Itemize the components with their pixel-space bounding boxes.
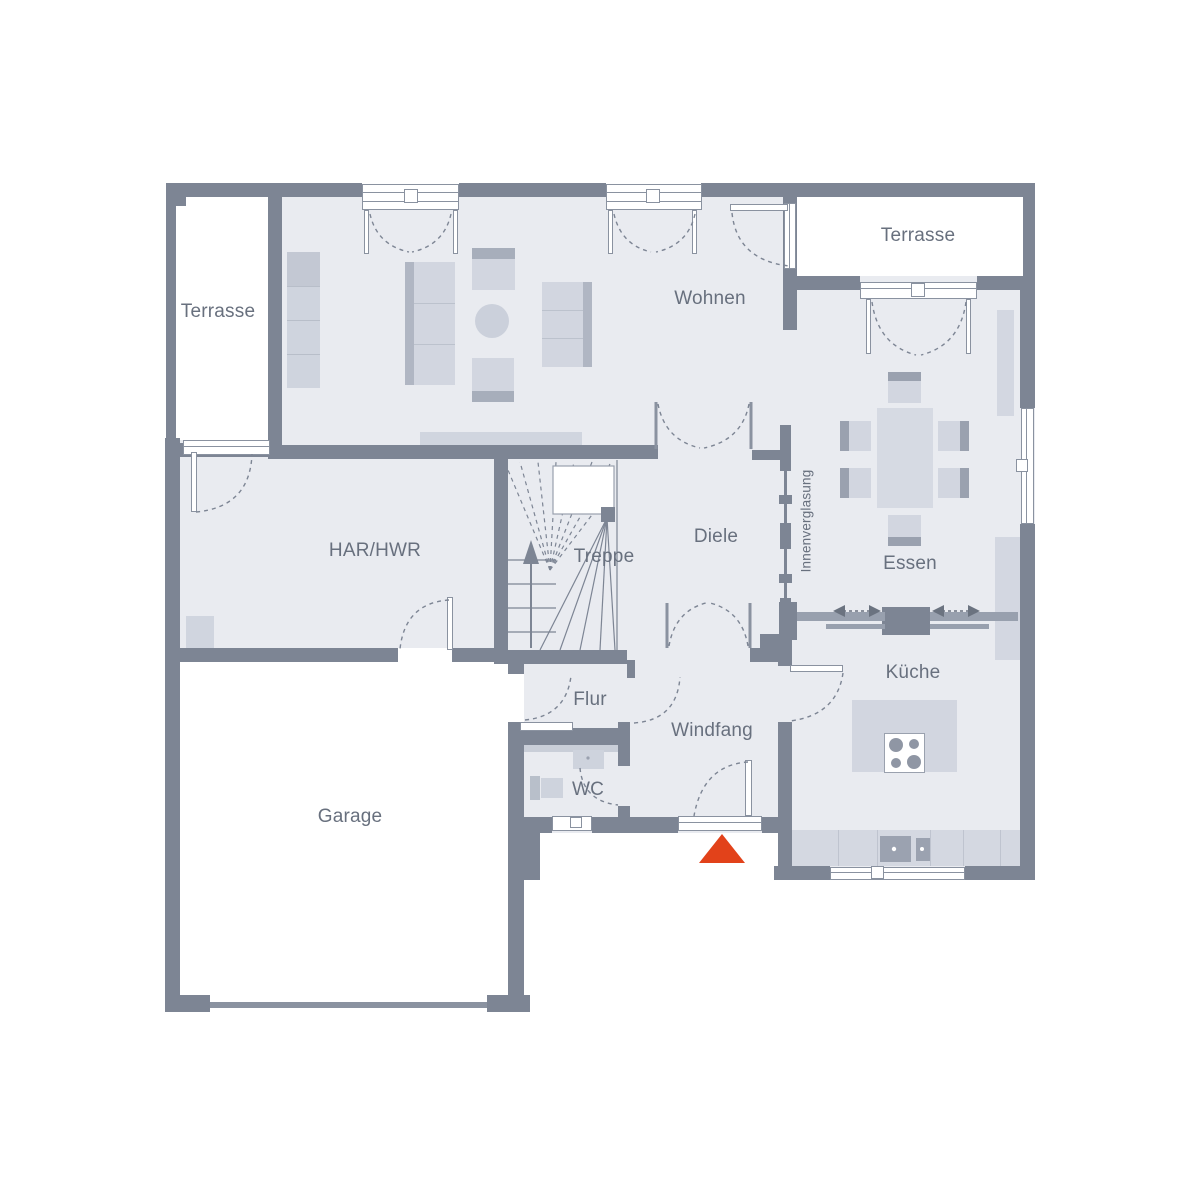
door-leaf <box>730 204 788 211</box>
counter-divider <box>838 830 839 866</box>
shelf-divider <box>287 286 320 287</box>
sideboard <box>997 310 1014 416</box>
door-frame-line <box>789 204 790 268</box>
sofa-cushion-line <box>414 344 455 345</box>
kitchen-tall-cabinet <box>995 537 1020 660</box>
entrance-recess <box>540 833 778 880</box>
wall <box>508 722 524 817</box>
wall <box>1020 290 1035 408</box>
dining-chair-back <box>960 421 969 451</box>
wall <box>1020 524 1035 880</box>
wall <box>540 817 552 833</box>
wall <box>452 648 494 662</box>
room-label-har-hwr: HAR/HWR <box>329 540 421 562</box>
front-door-threshold <box>678 816 762 831</box>
wall <box>508 662 524 674</box>
wall <box>487 995 530 1012</box>
door-opening <box>618 766 630 806</box>
wall <box>494 445 508 662</box>
wall <box>618 806 630 817</box>
armchair-back <box>472 248 515 259</box>
wall <box>965 866 1035 880</box>
counter-divider <box>1000 830 1001 866</box>
door-leaf <box>520 722 573 731</box>
sofa-cushion-line <box>414 303 455 304</box>
wall <box>508 817 540 880</box>
window-square <box>871 866 884 879</box>
armchair-back <box>472 391 514 402</box>
dining-chair-back <box>840 421 849 451</box>
sofa-cushion-line <box>542 338 583 339</box>
wall <box>882 607 930 635</box>
room-label-wc: WC <box>572 779 604 801</box>
garage-floor <box>180 662 508 995</box>
door-opening <box>508 674 524 722</box>
counter-divider <box>930 830 931 866</box>
window <box>830 867 965 880</box>
dining-chair-back <box>888 537 921 546</box>
wall <box>592 817 678 833</box>
wall <box>627 660 635 678</box>
garage-door <box>210 1002 487 1008</box>
washbasin <box>573 750 604 769</box>
door-opening <box>398 648 452 662</box>
window-line <box>831 872 964 873</box>
wall <box>176 196 186 206</box>
counter-divider <box>877 830 878 866</box>
kitchen-counter <box>790 830 1034 866</box>
door-leaf <box>608 210 613 254</box>
wall <box>175 183 362 197</box>
sliding-door-panel <box>930 624 989 629</box>
door-leaf <box>364 210 369 254</box>
wall <box>778 722 792 866</box>
sofa <box>542 282 583 367</box>
shelf-divider <box>287 320 320 321</box>
glazing-mullion <box>779 574 792 583</box>
floor-plan: Terrasse Wohnen Terrasse HAR/HWR Treppe … <box>0 0 1200 1200</box>
room-label-essen: Essen <box>883 553 937 575</box>
wall <box>165 995 210 1012</box>
wall <box>1023 183 1035 290</box>
dining-table <box>877 408 933 508</box>
door-frame-square <box>646 189 660 203</box>
dining-chair-back <box>888 372 921 381</box>
door-leaf <box>447 597 453 650</box>
dining-chair-back <box>840 468 849 498</box>
kitchen-sink <box>880 836 911 862</box>
wall <box>268 197 282 445</box>
room-label-terrasse-right: Terrasse <box>881 225 955 247</box>
wall <box>268 445 658 459</box>
door-frame-line <box>184 446 269 447</box>
wall <box>459 183 606 197</box>
wall <box>701 183 1035 197</box>
door-leaf <box>745 760 752 816</box>
utility-unit <box>186 616 214 648</box>
room-label-treppe: Treppe <box>574 546 635 568</box>
wall <box>774 866 830 880</box>
shelf-divider <box>287 354 320 355</box>
window-square <box>1016 459 1028 472</box>
counter-divider <box>963 830 964 866</box>
room-label-wohnen: Wohnen <box>674 288 746 310</box>
wall <box>165 648 398 662</box>
sliding-door-panel <box>930 612 1018 621</box>
room-label-terrasse-left: Terrasse <box>181 301 255 323</box>
wall <box>165 438 180 1012</box>
sliding-door-panel <box>826 624 885 629</box>
wall <box>779 602 797 640</box>
door-frame-line <box>679 822 761 823</box>
room-label-innenverglasung: Innenverglasung <box>799 470 814 573</box>
toilet-bowl <box>541 778 563 798</box>
door-frame-square <box>911 283 925 297</box>
room-label-garage: Garage <box>318 806 383 828</box>
toilet-tank <box>530 776 540 800</box>
cooktop <box>884 733 925 773</box>
door-leaf <box>453 210 458 254</box>
glazing-wall <box>780 523 791 549</box>
room-label-windfang: Windfang <box>671 720 753 742</box>
window-square <box>570 817 582 828</box>
sliding-door-panel <box>797 612 885 621</box>
room-label-flur: Flur <box>573 689 607 711</box>
room-label-kueche: Küche <box>886 662 941 684</box>
room-label-diele: Diele <box>694 526 738 548</box>
sofa-back <box>583 282 592 367</box>
shelf-top <box>287 252 320 286</box>
door-leaf <box>692 210 697 254</box>
wall <box>166 183 176 440</box>
door-leaf <box>966 299 971 354</box>
wall <box>783 276 860 290</box>
coffee-table <box>475 304 509 338</box>
glazing-mullion <box>779 495 792 504</box>
door-frame-square <box>404 189 418 203</box>
sofa <box>414 262 455 385</box>
door-leaf <box>191 452 197 512</box>
door-leaf <box>866 299 871 354</box>
wall <box>778 640 792 666</box>
sofa-cushion-line <box>542 310 583 311</box>
kitchen-sink-small <box>916 838 930 861</box>
terrace-door <box>784 203 796 269</box>
door-leaf <box>790 665 843 672</box>
wall <box>508 880 524 1012</box>
sofa-back <box>405 262 414 385</box>
dining-chair-back <box>960 468 969 498</box>
